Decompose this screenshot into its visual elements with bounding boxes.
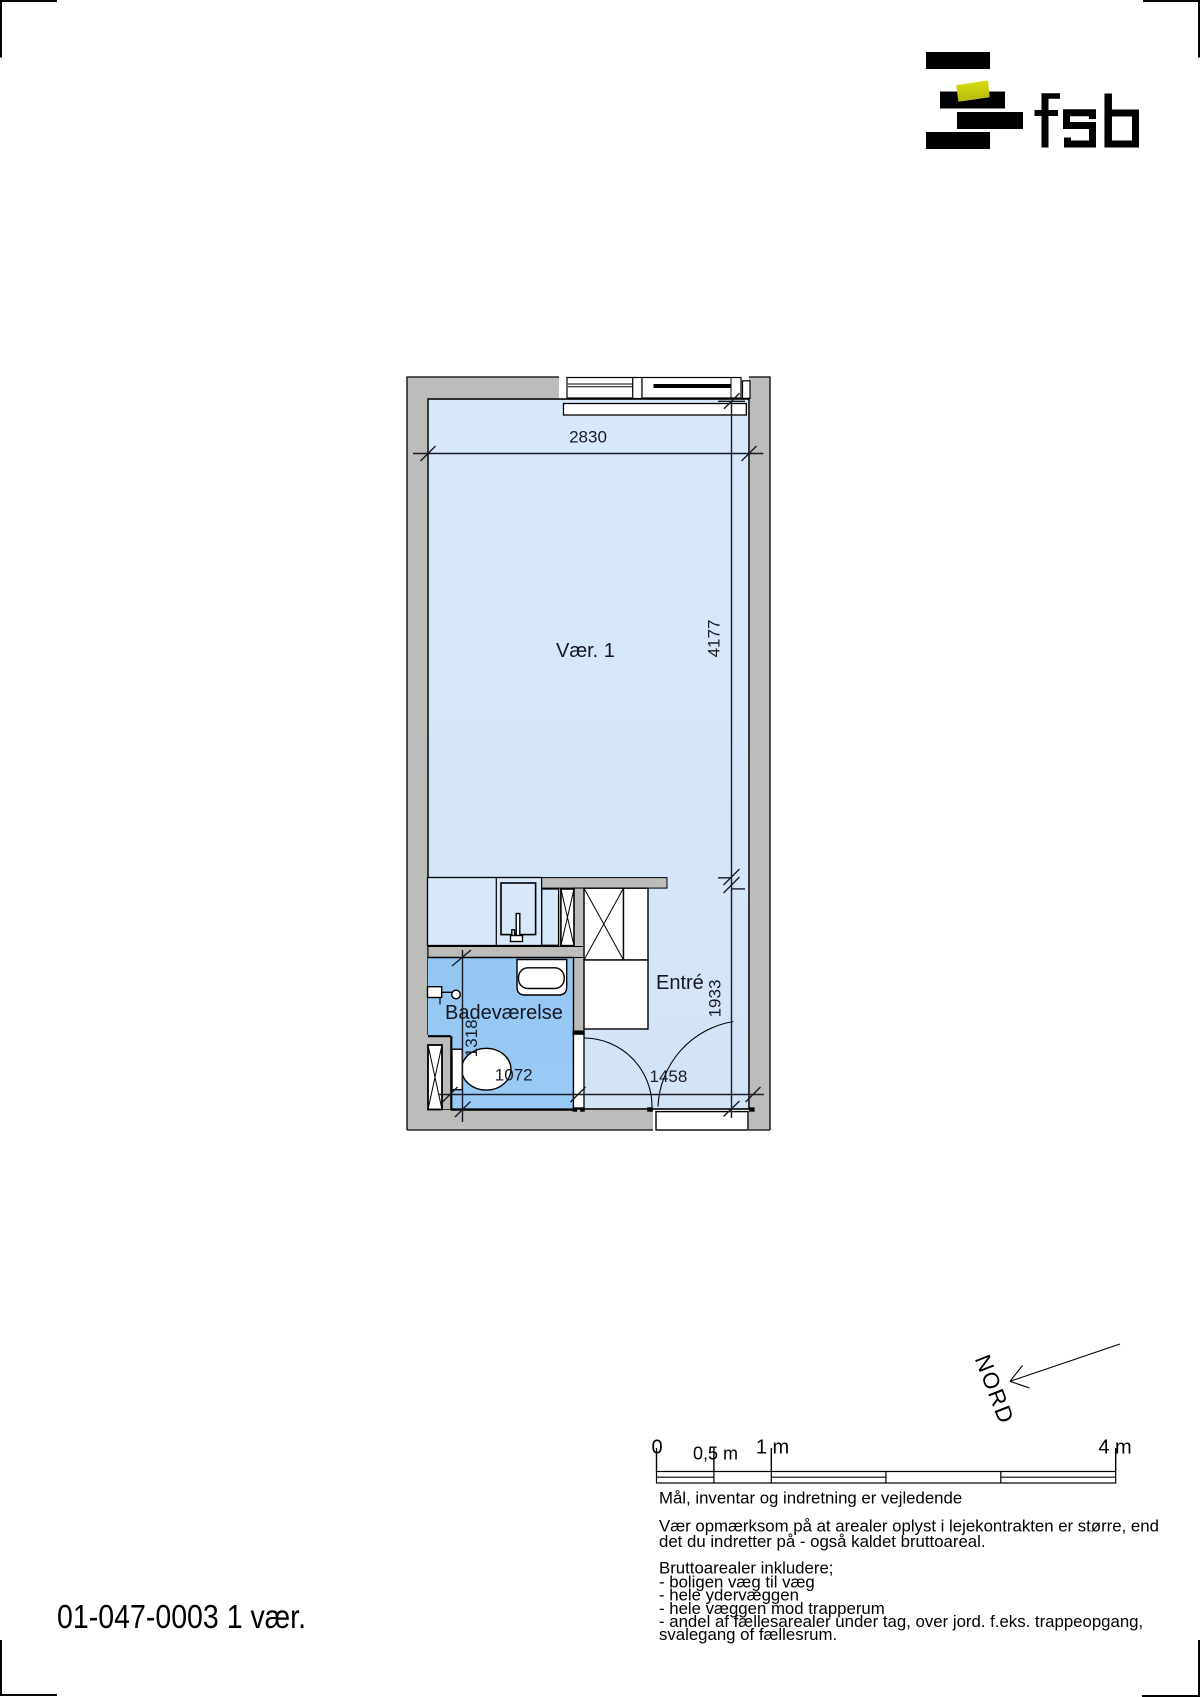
svg-text:1933: 1933 — [706, 980, 725, 1018]
svg-text:1318: 1318 — [462, 1019, 481, 1057]
svg-text:1072: 1072 — [495, 1066, 533, 1085]
svg-text:svalegang of fællesrum.: svalegang of fællesrum. — [659, 1625, 837, 1644]
svg-text:4 m: 4 m — [1098, 1437, 1131, 1459]
svg-text:Vær. 1: Vær. 1 — [556, 640, 615, 662]
svg-text:1 m: 1 m — [756, 1437, 789, 1459]
svg-text:01-047-0003 1 vær.: 01-047-0003 1 vær. — [57, 1598, 306, 1635]
svg-text:2830: 2830 — [569, 428, 607, 447]
svg-text:Entré: Entré — [656, 972, 704, 994]
svg-text:0,5 m: 0,5 m — [693, 1444, 738, 1464]
svg-text:Badeværelse: Badeværelse — [445, 1002, 563, 1024]
svg-text:Mål, inventar og indretning er: Mål, inventar og indretning er vejledend… — [659, 1489, 962, 1508]
svg-text:1458: 1458 — [649, 1067, 687, 1086]
svg-text:NORD: NORD — [970, 1351, 1019, 1427]
svg-text:4177: 4177 — [705, 620, 724, 658]
svg-text:0: 0 — [651, 1437, 662, 1459]
svg-text:det du indretter på - også kal: det du indretter på - også kaldet brutto… — [659, 1532, 986, 1551]
